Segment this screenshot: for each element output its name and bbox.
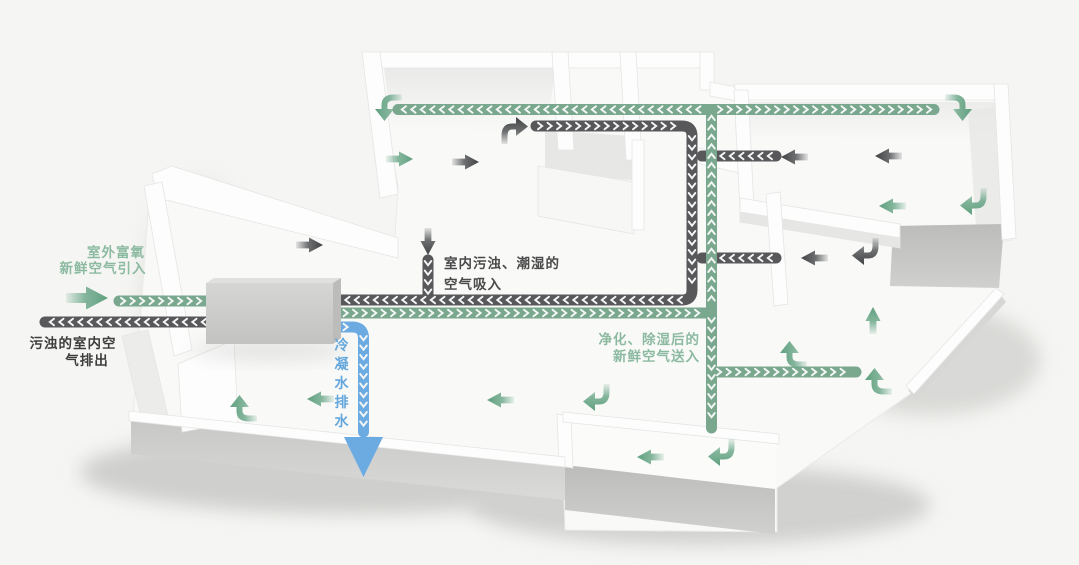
room-inner-shade [384, 68, 556, 132]
label-outdoor-fresh-air-line1: 室外富氧 [87, 244, 145, 261]
airflow-diagram: 室外富氧 新鲜空气引入 污浊的室内空 气排出 室内污浊、潮湿的 空气吸入 冷凝水… [0, 0, 1079, 565]
unit-body [206, 283, 333, 344]
unit-side [333, 278, 341, 344]
label-outdoor-fresh-air-line2: 新鲜空气引入 [60, 260, 147, 277]
ventilation-unit [192, 278, 348, 359]
label-indoor-intake-line1: 室内污浊、潮湿的 [444, 255, 560, 272]
wall [632, 140, 644, 230]
wall [368, 52, 708, 68]
label-purified-supply-line2: 新鲜空气送入 [613, 348, 700, 365]
label-condensate-drain: 冷凝水排水 [335, 337, 350, 430]
wall [734, 84, 1004, 100]
label-exhaust-out-line2: 气排出 [64, 352, 109, 369]
label-purified-supply-line1: 净化、除湿后的 [599, 331, 701, 348]
label-indoor-intake-line2: 空气吸入 [444, 276, 502, 293]
label-exhaust-out-line1: 污浊的室内空 [30, 335, 117, 352]
midright-room-face [890, 224, 1004, 288]
floorplan-canvas: 室外富氧 新鲜空气引入 污浊的室内空 气排出 室内污浊、潮湿的 空气吸入 冷凝水… [0, 0, 1079, 565]
unit-top [206, 278, 341, 283]
